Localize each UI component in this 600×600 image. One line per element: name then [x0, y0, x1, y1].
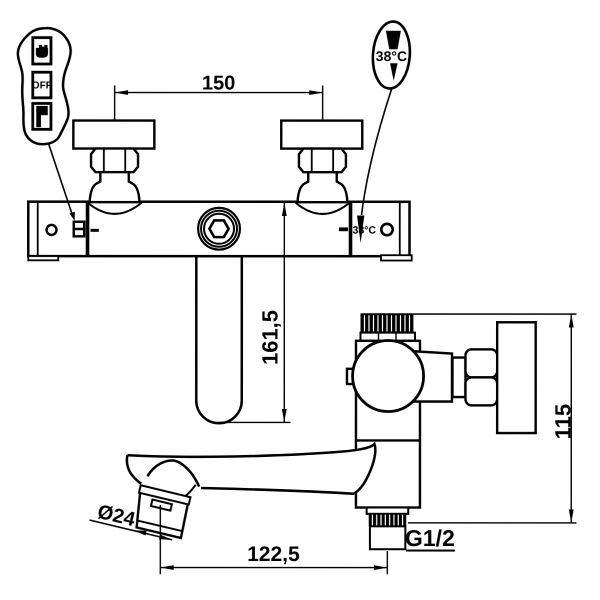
svg-text:Ø24: Ø24: [95, 501, 138, 531]
svg-text:OFF: OFF: [32, 80, 52, 91]
svg-text:122,5: 122,5: [247, 543, 300, 566]
svg-text:161,5: 161,5: [257, 310, 282, 365]
svg-text:38°C: 38°C: [376, 48, 407, 64]
svg-text:G1/2: G1/2: [405, 525, 455, 551]
svg-text:150: 150: [202, 72, 235, 94]
svg-text:38°C: 38°C: [353, 225, 377, 237]
svg-text:115: 115: [550, 404, 575, 440]
